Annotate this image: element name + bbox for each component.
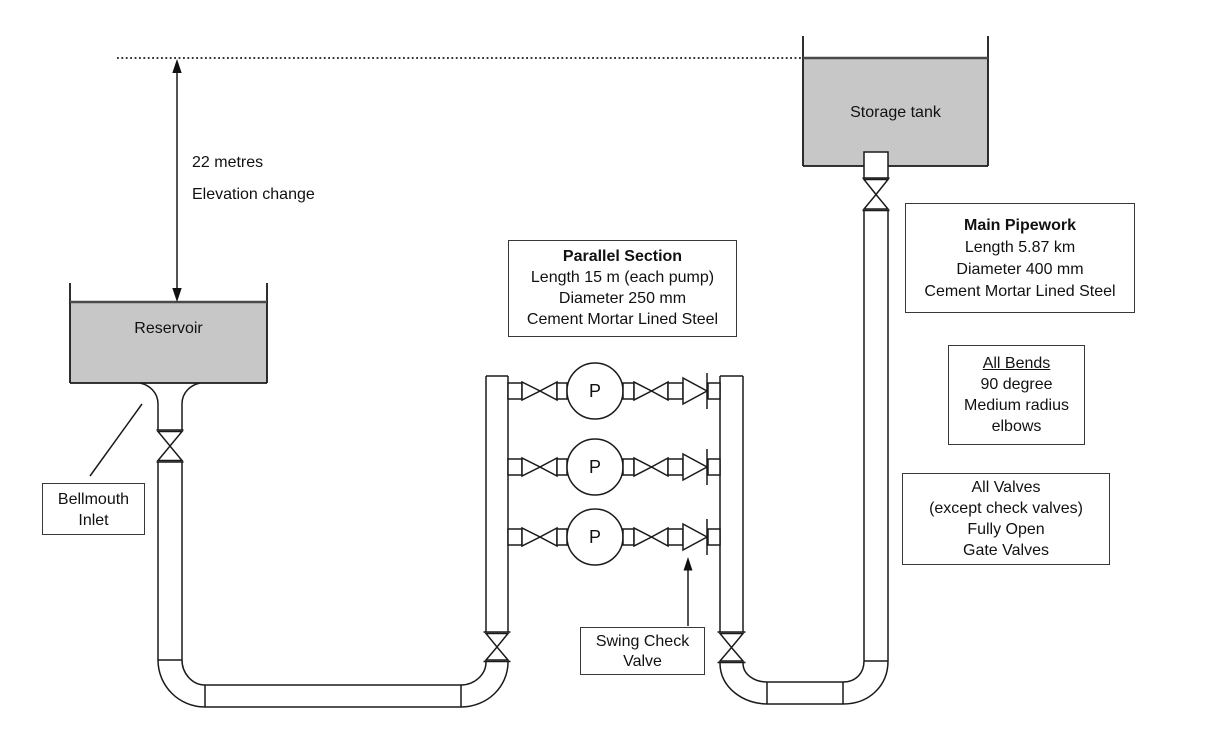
callout-line: Length 5.87 km: [906, 237, 1134, 259]
pipe-elbow: [843, 661, 888, 704]
callout-line: Diameter 400 mm: [906, 259, 1134, 281]
pumping-system-diagram: 22 metres Elevation change Reservoir Sto…: [0, 0, 1232, 742]
main-riser-pipe: [864, 211, 888, 662]
arrowhead-up-icon: [172, 59, 181, 73]
left-header-pipe: [486, 376, 508, 632]
flange-icon: [557, 529, 567, 545]
pipe-elbow: [461, 662, 508, 707]
flange-icon: [508, 529, 522, 545]
flange-icon: [508, 383, 522, 399]
callout-line: 90 degree: [949, 374, 1084, 395]
check-valve-icon: [683, 373, 707, 409]
reservoir-outlet-pipe: [158, 404, 508, 707]
pump-label: P: [567, 381, 623, 402]
all-valves-callout: All Valves (except check valves) Fully O…: [902, 473, 1110, 565]
flange-icon: [557, 383, 567, 399]
flange-icon: [708, 529, 720, 545]
elevation-value-label: 22 metres: [192, 153, 263, 173]
callout-title: All Bends: [949, 353, 1084, 374]
bellmouth-inlet: [140, 383, 200, 404]
pump-label: P: [567, 457, 623, 478]
flange-icon: [668, 529, 683, 545]
all-bends-callout: All Bends 90 degree Medium radius elbows: [948, 345, 1085, 445]
storage-tank-label: Storage tank: [803, 103, 988, 123]
flange-icon: [708, 459, 720, 475]
reservoir-label: Reservoir: [70, 319, 267, 339]
flange-icon: [623, 459, 634, 475]
callout-line: Swing Check: [581, 632, 704, 652]
callout-line: Valve: [581, 652, 704, 672]
callout-line: Inlet: [43, 510, 144, 531]
gate-valve-icon: [522, 528, 557, 546]
parallel-section-headers: [486, 376, 743, 632]
callout-line: Cement Mortar Lined Steel: [906, 281, 1134, 303]
flange-icon: [623, 383, 634, 399]
callout-line: Bellmouth: [43, 489, 144, 510]
check-valve-icon: [683, 449, 707, 485]
gate-valve-icon: [484, 632, 511, 662]
pipe-elbow: [158, 660, 205, 707]
callout-line: (except check valves): [903, 498, 1109, 519]
callout-title: Parallel Section: [509, 246, 736, 267]
arrowhead-up-icon: [684, 557, 693, 571]
gate-valve-icon: [718, 632, 746, 663]
callout-line: Length 15 m (each pump): [509, 267, 736, 288]
gate-valve-icon: [522, 458, 557, 476]
gate-valve-icon: [634, 458, 668, 476]
gate-valve-icon: [157, 430, 184, 462]
swing-check-valve-callout: Swing Check Valve: [580, 627, 705, 675]
callout-line: Fully Open: [903, 519, 1109, 540]
pipe-elbow: [720, 663, 767, 704]
arrowhead-down-icon: [172, 288, 181, 302]
check-valve-icon: [683, 519, 707, 555]
bellmouth-inlet-callout: Bellmouth Inlet: [42, 483, 145, 535]
parallel-section-callout: Parallel Section Length 15 m (each pump)…: [508, 240, 737, 337]
flange-icon: [668, 459, 683, 475]
right-header-pipe: [720, 376, 743, 632]
tank-outlet-stub: [864, 152, 888, 178]
callout-line: Cement Mortar Lined Steel: [509, 309, 736, 330]
gate-valve-icon: [863, 178, 890, 211]
flange-icon: [557, 459, 567, 475]
swing-check-arrow: [684, 557, 693, 626]
callout-line: Diameter 250 mm: [509, 288, 736, 309]
elevation-arrow: [172, 59, 181, 302]
elevation-change-label: Elevation change: [192, 185, 315, 205]
callout-title: Main Pipework: [906, 215, 1134, 237]
callout-line: elbows: [949, 416, 1084, 437]
flange-icon: [668, 383, 683, 399]
bellmouth-leader-line: [90, 404, 142, 476]
discharge-bottom-pipe: [720, 211, 888, 705]
gate-valve-icon: [634, 382, 668, 400]
flange-icon: [708, 383, 720, 399]
gate-valve-icon: [522, 382, 557, 400]
callout-line: All Valves: [903, 477, 1109, 498]
main-pipework-callout: Main Pipework Length 5.87 km Diameter 40…: [905, 203, 1135, 313]
callout-line: Medium radius: [949, 395, 1084, 416]
flange-icon: [623, 529, 634, 545]
pump-label: P: [567, 527, 623, 548]
callout-line: Gate Valves: [903, 540, 1109, 561]
schematic-lines: [70, 36, 988, 707]
gate-valve-icon: [634, 528, 668, 546]
flange-icon: [508, 459, 522, 475]
storage-tank: [803, 36, 988, 166]
